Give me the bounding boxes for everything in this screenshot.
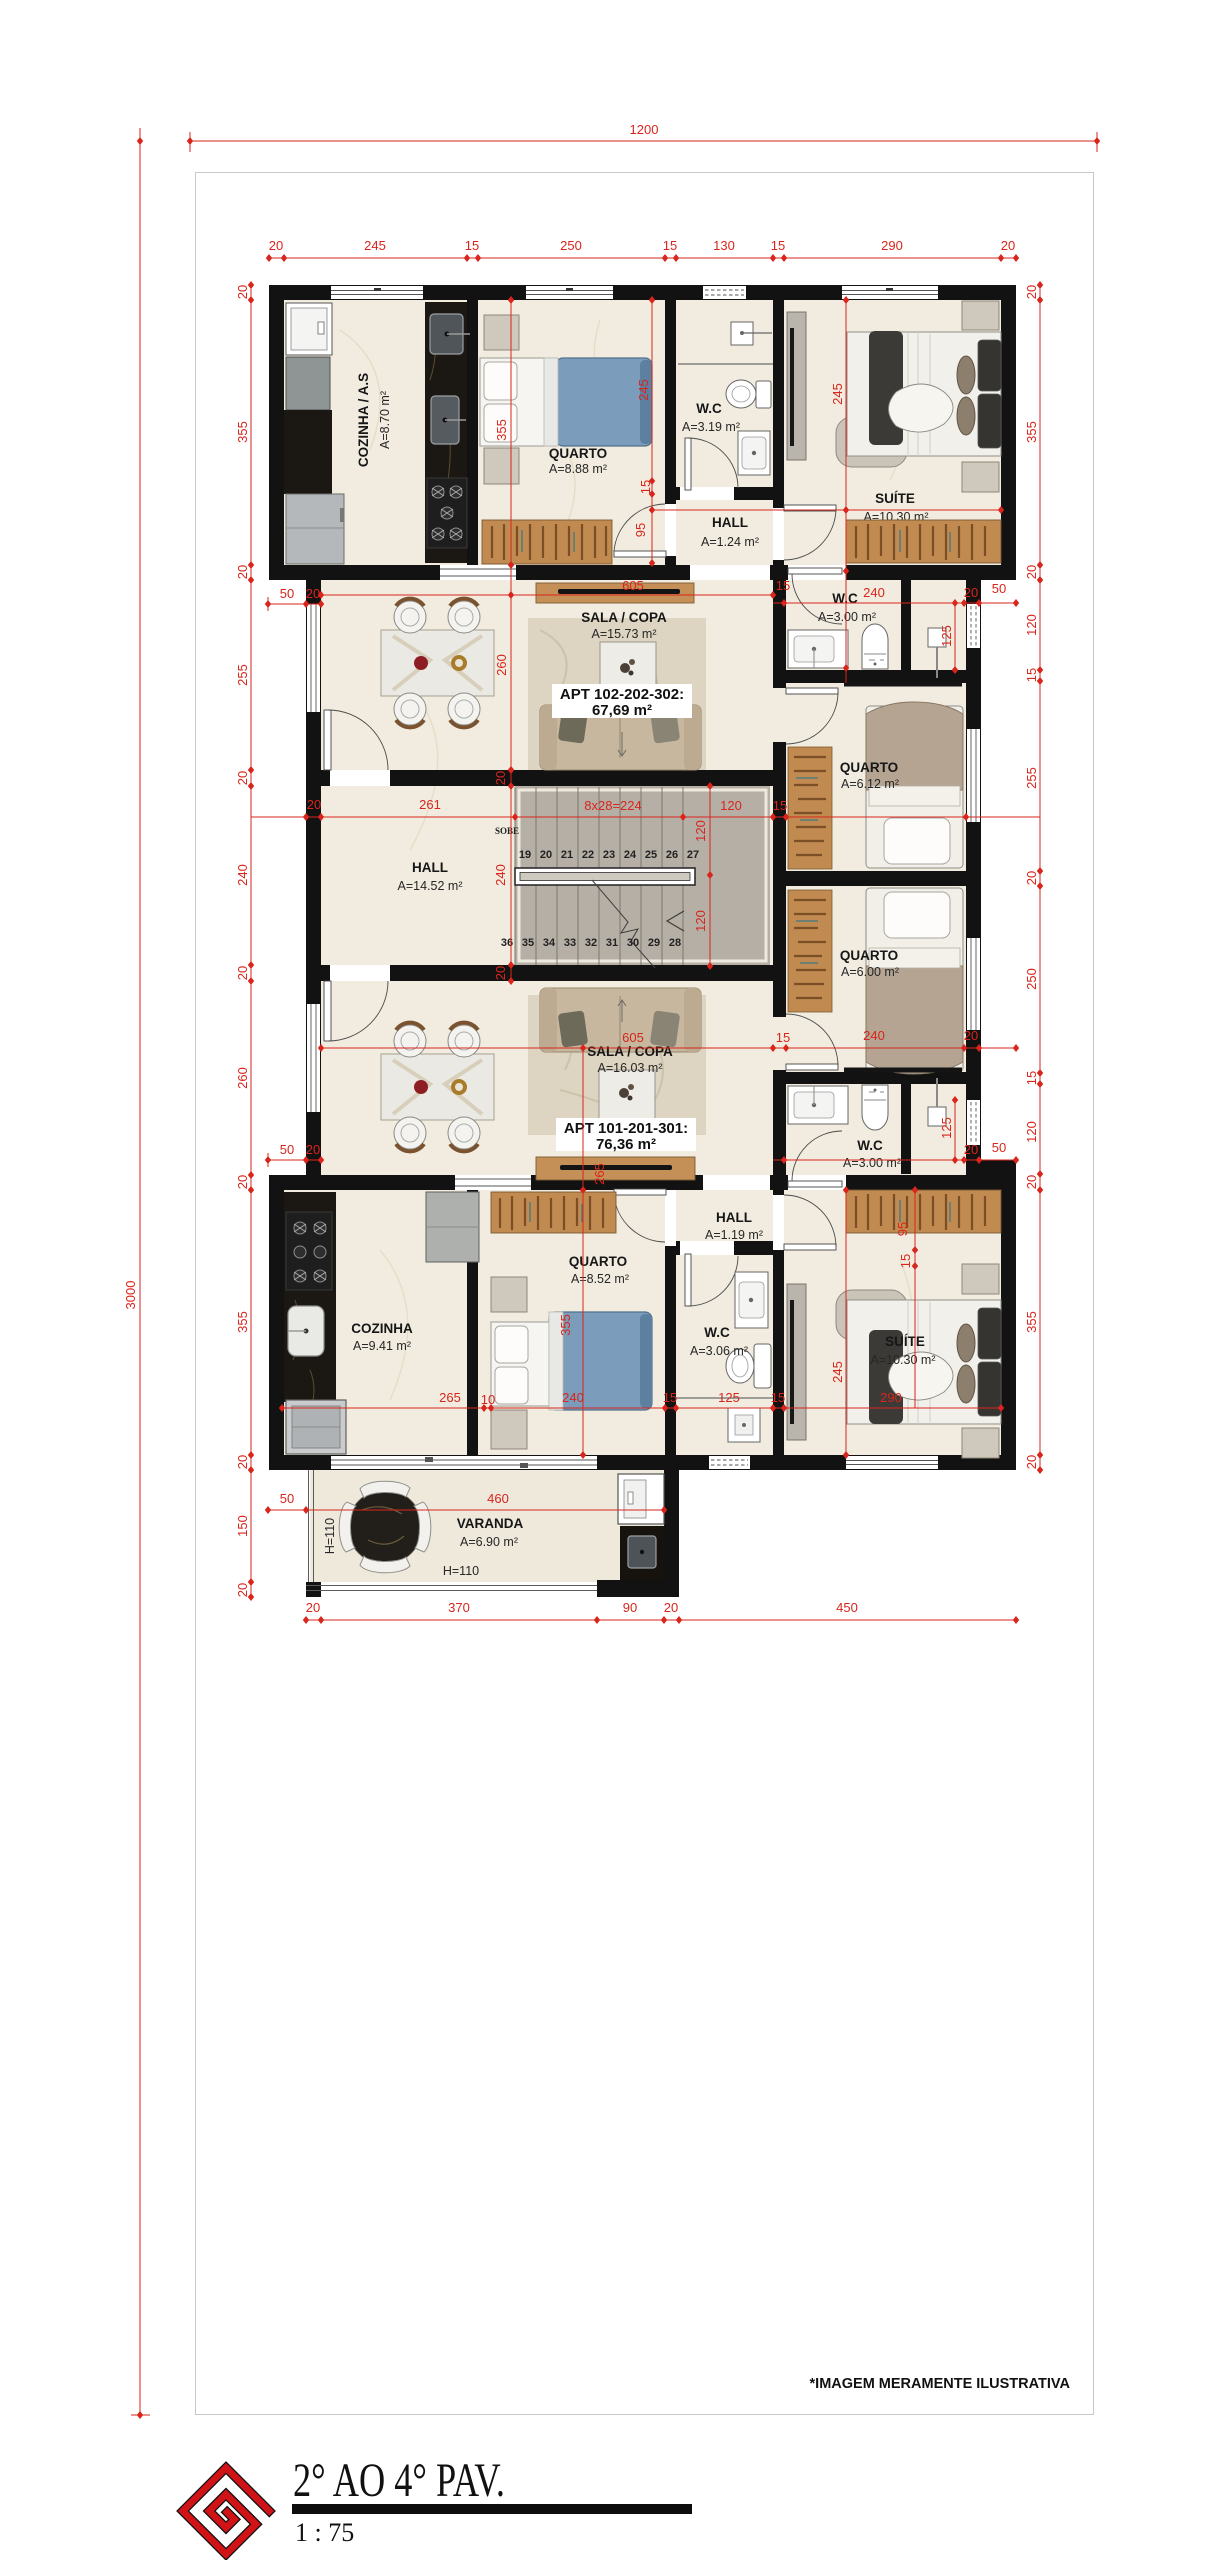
- svg-text:*IMAGEM MERAMENTE ILUSTRATIVA: *IMAGEM MERAMENTE ILUSTRATIVA: [810, 2376, 1071, 2392]
- svg-text:COZINHA / A.S: COZINHA / A.S: [356, 373, 371, 467]
- svg-text:240: 240: [863, 585, 885, 600]
- svg-text:A=8.70 m²: A=8.70 m²: [378, 391, 392, 449]
- svg-text:261: 261: [419, 797, 441, 812]
- svg-text:A=3.00 m²: A=3.00 m²: [843, 1156, 901, 1170]
- svg-text:33: 33: [564, 937, 576, 949]
- svg-text:20: 20: [306, 1142, 320, 1157]
- svg-text:125: 125: [718, 1390, 740, 1405]
- svg-text:240: 240: [863, 1028, 885, 1043]
- svg-text:20: 20: [1001, 238, 1015, 253]
- svg-text:34: 34: [543, 937, 556, 949]
- svg-text:245: 245: [830, 1361, 845, 1383]
- svg-text:20: 20: [964, 1028, 978, 1043]
- svg-text:605: 605: [622, 578, 644, 593]
- svg-text:20: 20: [1024, 285, 1039, 299]
- svg-text:265: 265: [439, 1390, 461, 1405]
- svg-text:240: 240: [235, 864, 250, 886]
- svg-text:50: 50: [280, 1491, 294, 1506]
- svg-text:27: 27: [687, 849, 699, 861]
- svg-text:A=9.41 m²: A=9.41 m²: [353, 1339, 411, 1353]
- svg-text:240: 240: [562, 1390, 584, 1405]
- svg-text:250: 250: [1024, 968, 1039, 990]
- svg-text:A=6.90 m²: A=6.90 m²: [460, 1535, 518, 1549]
- svg-text:35: 35: [522, 937, 534, 949]
- svg-text:20: 20: [1024, 565, 1039, 579]
- svg-text:20: 20: [964, 1142, 978, 1157]
- svg-text:355: 355: [235, 1311, 250, 1333]
- svg-text:1 : 75: 1 : 75: [295, 2518, 354, 2547]
- svg-text:H=110: H=110: [443, 1564, 479, 1578]
- svg-text:QUARTO: QUARTO: [569, 1254, 627, 1269]
- svg-text:20: 20: [269, 238, 283, 253]
- svg-text:24: 24: [624, 849, 637, 861]
- svg-text:255: 255: [1024, 767, 1039, 789]
- svg-text:SUÍTE: SUÍTE: [885, 1334, 925, 1349]
- svg-text:125: 125: [939, 625, 954, 647]
- svg-text:260: 260: [494, 654, 509, 676]
- svg-text:15: 15: [663, 238, 677, 253]
- svg-text:20: 20: [1024, 1455, 1039, 1469]
- svg-text:355: 355: [494, 419, 509, 441]
- svg-text:15: 15: [1024, 1071, 1039, 1085]
- svg-text:20: 20: [235, 1583, 250, 1597]
- svg-text:A=3.19 m²: A=3.19 m²: [682, 420, 740, 434]
- svg-text:67,69 m²: 67,69 m²: [592, 702, 652, 719]
- svg-text:SALA / COPA: SALA / COPA: [581, 610, 667, 625]
- svg-text:245: 245: [636, 379, 651, 401]
- svg-text:SOBE: SOBE: [495, 826, 519, 836]
- svg-text:50: 50: [992, 581, 1006, 596]
- svg-text:95: 95: [633, 523, 648, 537]
- svg-text:130: 130: [713, 238, 735, 253]
- svg-text:SALA / COPA: SALA / COPA: [587, 1044, 673, 1059]
- svg-text:20: 20: [540, 849, 552, 861]
- svg-text:260: 260: [235, 1067, 250, 1089]
- svg-text:355: 355: [235, 421, 250, 443]
- svg-text:3000: 3000: [123, 1281, 138, 1310]
- svg-text:W.C: W.C: [704, 1325, 730, 1340]
- svg-text:120: 120: [1024, 614, 1039, 636]
- svg-text:15: 15: [638, 480, 653, 494]
- svg-text:125: 125: [939, 1117, 954, 1139]
- svg-text:SUÍTE: SUÍTE: [875, 491, 915, 506]
- svg-text:245: 245: [830, 383, 845, 405]
- svg-text:QUARTO: QUARTO: [840, 760, 898, 775]
- svg-text:8x28=224: 8x28=224: [584, 798, 641, 813]
- svg-text:A=3.06 m²: A=3.06 m²: [690, 1344, 748, 1358]
- svg-text:23: 23: [603, 849, 615, 861]
- svg-text:290: 290: [880, 1390, 902, 1405]
- svg-text:32: 32: [585, 937, 597, 949]
- svg-text:20: 20: [235, 1175, 250, 1189]
- svg-text:76,36 m²: 76,36 m²: [596, 1136, 656, 1153]
- svg-text:W.C: W.C: [832, 591, 858, 606]
- svg-text:150: 150: [235, 1515, 250, 1537]
- svg-text:21: 21: [561, 849, 573, 861]
- svg-text:20: 20: [235, 966, 250, 980]
- svg-text:31: 31: [606, 937, 618, 949]
- svg-text:30: 30: [627, 937, 639, 949]
- svg-text:370: 370: [448, 1600, 470, 1615]
- svg-text:29: 29: [648, 937, 660, 949]
- svg-text:245: 245: [364, 238, 386, 253]
- svg-text:10: 10: [481, 1392, 495, 1407]
- svg-text:25: 25: [645, 849, 657, 861]
- svg-text:A=8.52 m²: A=8.52 m²: [571, 1272, 629, 1286]
- svg-text:20: 20: [235, 771, 250, 785]
- svg-text:A=3.00 m²: A=3.00 m²: [818, 610, 876, 624]
- svg-text:460: 460: [487, 1491, 509, 1506]
- svg-text:20: 20: [235, 565, 250, 579]
- svg-text:290: 290: [881, 238, 903, 253]
- svg-text:A=8.88 m²: A=8.88 m²: [549, 462, 607, 476]
- svg-text:W.C: W.C: [696, 401, 722, 416]
- svg-text:20: 20: [306, 586, 320, 601]
- svg-text:15: 15: [771, 238, 785, 253]
- svg-text:605: 605: [622, 1030, 644, 1045]
- svg-text:15: 15: [773, 798, 787, 813]
- svg-text:90: 90: [623, 1600, 637, 1615]
- svg-text:20: 20: [1024, 871, 1039, 885]
- svg-text:HALL: HALL: [412, 860, 448, 875]
- svg-text:QUARTO: QUARTO: [549, 446, 607, 461]
- svg-text:APT 102-202-302:: APT 102-202-302:: [560, 686, 684, 703]
- svg-text:A=10.30 m²: A=10.30 m²: [871, 1353, 936, 1367]
- svg-text:COZINHA: COZINHA: [351, 1321, 413, 1336]
- svg-text:95: 95: [895, 1222, 910, 1236]
- svg-text:HALL: HALL: [712, 515, 748, 530]
- svg-text:20: 20: [964, 585, 978, 600]
- svg-text:20: 20: [664, 1600, 678, 1615]
- svg-text:A=6.12 m²: A=6.12 m²: [841, 777, 899, 791]
- svg-text:50: 50: [280, 1142, 294, 1157]
- svg-text:20: 20: [493, 966, 508, 980]
- svg-text:1200: 1200: [630, 122, 659, 137]
- svg-text:265: 265: [592, 1163, 607, 1185]
- svg-text:A=15.73 m²: A=15.73 m²: [592, 627, 657, 641]
- svg-text:A=14.52 m²: A=14.52 m²: [398, 879, 463, 893]
- svg-text:H=110: H=110: [323, 1518, 337, 1554]
- svg-text:28: 28: [669, 937, 681, 949]
- svg-text:355: 355: [558, 1314, 573, 1336]
- svg-text:20: 20: [235, 1455, 250, 1469]
- svg-text:2° AO 4° PAV.: 2° AO 4° PAV.: [293, 2454, 505, 2507]
- svg-text:15: 15: [776, 578, 790, 593]
- svg-text:15: 15: [465, 238, 479, 253]
- svg-text:120: 120: [1024, 1121, 1039, 1143]
- svg-text:450: 450: [836, 1600, 858, 1615]
- svg-text:VARANDA: VARANDA: [457, 1516, 524, 1531]
- svg-text:QUARTO: QUARTO: [840, 948, 898, 963]
- svg-text:50: 50: [280, 586, 294, 601]
- svg-text:A=1.19 m²: A=1.19 m²: [705, 1228, 763, 1242]
- svg-text:20: 20: [306, 1600, 320, 1615]
- svg-text:240: 240: [493, 864, 508, 886]
- svg-text:26: 26: [666, 849, 678, 861]
- svg-text:A=16.03 m²: A=16.03 m²: [598, 1061, 663, 1075]
- svg-text:20: 20: [307, 797, 321, 812]
- svg-text:255: 255: [235, 664, 250, 686]
- svg-text:15: 15: [771, 1390, 785, 1405]
- svg-text:22: 22: [582, 849, 594, 861]
- svg-text:120: 120: [693, 820, 708, 842]
- svg-text:15: 15: [898, 1254, 913, 1268]
- svg-text:355: 355: [1024, 421, 1039, 443]
- svg-text:20: 20: [235, 285, 250, 299]
- svg-text:15: 15: [776, 1030, 790, 1045]
- svg-text:19: 19: [519, 849, 531, 861]
- svg-text:20: 20: [1024, 1175, 1039, 1189]
- svg-text:50: 50: [992, 1140, 1006, 1155]
- svg-text:250: 250: [560, 238, 582, 253]
- svg-text:120: 120: [693, 910, 708, 932]
- svg-text:15: 15: [663, 1390, 677, 1405]
- svg-text:A=1.24 m²: A=1.24 m²: [701, 535, 759, 549]
- svg-text:355: 355: [1024, 1311, 1039, 1333]
- svg-text:HALL: HALL: [716, 1210, 752, 1225]
- svg-text:15: 15: [1024, 668, 1039, 682]
- svg-text:20: 20: [493, 771, 508, 785]
- svg-text:A=6.00 m²: A=6.00 m²: [841, 965, 899, 979]
- svg-text:W.C: W.C: [857, 1138, 883, 1153]
- svg-text:120: 120: [720, 798, 742, 813]
